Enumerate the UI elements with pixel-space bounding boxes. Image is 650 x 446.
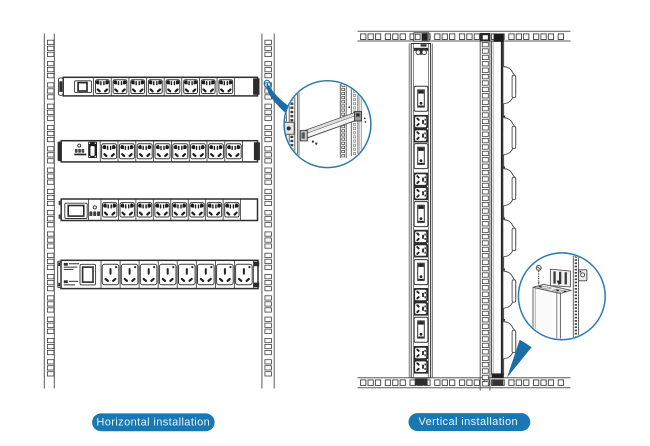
svg-text:Horizontal installation: Horizontal installation xyxy=(96,416,210,428)
svg-text:Vertical installation: Vertical installation xyxy=(419,416,519,428)
